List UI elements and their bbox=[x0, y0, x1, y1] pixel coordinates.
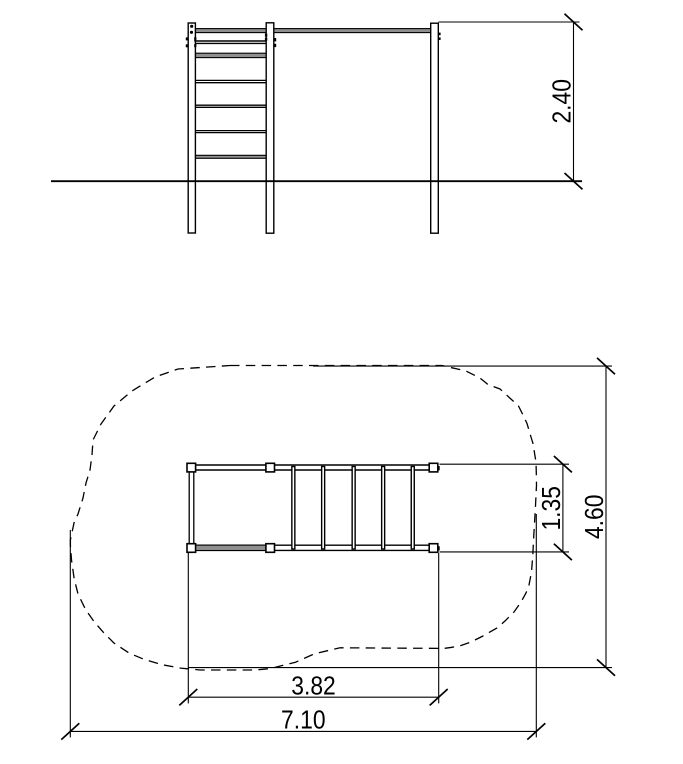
svg-text:3.82: 3.82 bbox=[291, 672, 335, 701]
svg-text:4.60: 4.60 bbox=[581, 495, 610, 539]
svg-text:2.40: 2.40 bbox=[548, 79, 577, 123]
svg-text:7.10: 7.10 bbox=[281, 706, 325, 735]
svg-text:1.35: 1.35 bbox=[538, 486, 567, 530]
